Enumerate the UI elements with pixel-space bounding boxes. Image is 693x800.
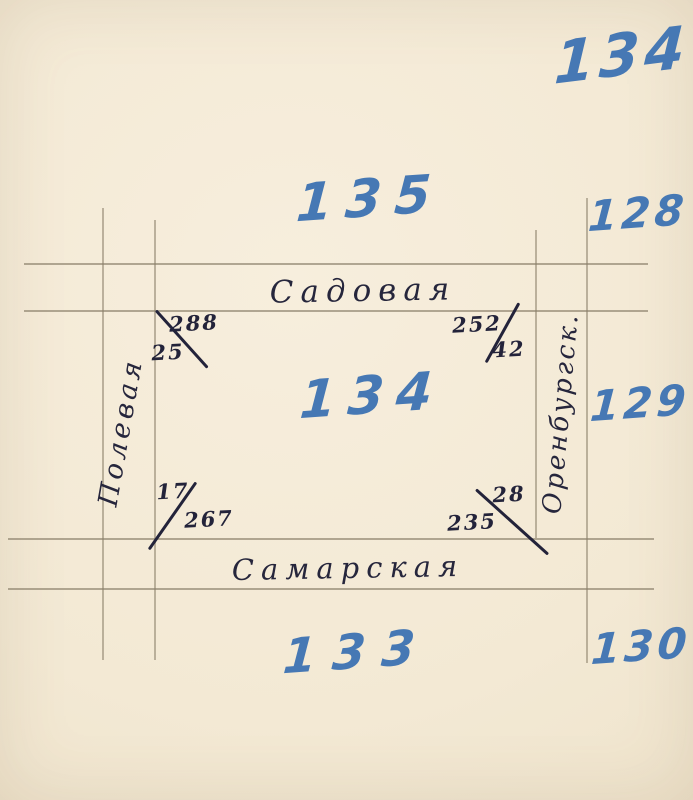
measurement-top-left-upper: 288 [168,309,219,337]
block-number-north-east: 128 [587,185,690,241]
block-number-bottom: 133 [281,619,433,686]
street-name-right: Оренбургск. [537,311,585,515]
pencil-line-top-street-upper [24,263,648,265]
pencil-line-bottom-street-lower [8,588,654,590]
street-name-top: Садовая [269,271,456,310]
block-number-far-top-right: 134 [553,12,692,98]
block-number-east: 129 [589,375,692,431]
block-number-top: 135 [294,164,445,235]
scanned-sketch-canvas: 134 135 128 134 129 133 130 Садовая Сама… [0,0,693,800]
measurement-bottom-right-lower: 235 [446,508,497,536]
block-number-south-east: 130 [590,618,693,674]
measurement-top-right-upper: 252 [451,310,502,338]
measurement-bottom-left-upper: 17 [156,478,190,505]
pencil-line-left-street-inner [154,220,156,660]
pencil-line-left-street-outer [102,208,104,660]
street-name-bottom: Самарская [232,549,465,587]
measurement-bottom-left-lower: 267 [183,505,234,533]
measurement-bottom-right-upper: 28 [492,481,526,508]
pencil-line-bottom-street-upper [8,538,654,540]
block-number-center: 134 [298,361,446,432]
measurement-top-left-lower: 25 [151,339,185,366]
pencil-line-right-street-inner [535,230,537,538]
measurement-top-right-lower: 42 [492,336,526,363]
